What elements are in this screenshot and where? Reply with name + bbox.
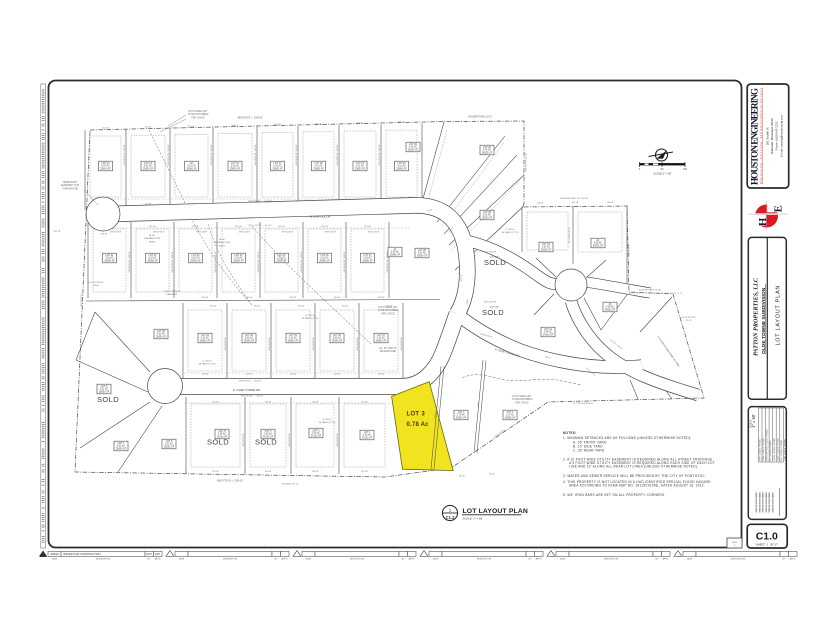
svg-text:Batesville, Mississippi 38606: Batesville, Mississippi 38606 bbox=[770, 118, 774, 154]
svg-text:S00°06'56"W: S00°06'56"W bbox=[629, 244, 631, 256]
svg-text:25650 SF: 25650 SF bbox=[186, 168, 197, 171]
svg-text:S00°06'56"W: S00°06'56"W bbox=[313, 337, 315, 351]
svg-text:S00°06'56"W: S00°06'56"W bbox=[243, 433, 245, 447]
svg-text:SOLD: SOLD bbox=[484, 258, 506, 267]
svg-text:25650 SF: 25650 SF bbox=[505, 417, 516, 420]
svg-text:N89°47'51"W — 1294.06': N89°47'51"W — 1294.06' bbox=[217, 481, 244, 483]
svg-text:LINE AND 10' ALONG ALL REAR LO: LINE AND 10' ALONG ALL REAR LOT LINES (U… bbox=[569, 464, 698, 468]
svg-text:25650 SF: 25650 SF bbox=[541, 249, 552, 252]
svg-text:24530 SF: 24530 SF bbox=[605, 309, 616, 312]
svg-text:APPD: APPD bbox=[663, 558, 669, 561]
svg-text:3. WATER AND SEWER SERVICE W: 3. WATER AND SEWER SERVICE WILL BE PROVI… bbox=[563, 474, 706, 478]
svg-text:25650 SF: 25650 SF bbox=[116, 448, 127, 451]
svg-text:S89°53'04"E — 1294.06': S89°53'04"E — 1294.06' bbox=[237, 118, 263, 120]
svg-text:ISSUED FOR CONSTRUCTION: ISSUED FOR CONSTRUCTION bbox=[63, 552, 101, 556]
svg-text:DAH: DAH bbox=[146, 553, 151, 556]
svg-text:W SUFFOLK DR: W SUFFOLK DR bbox=[309, 215, 330, 219]
svg-text:N01°51'04"E: N01°51'04"E bbox=[484, 302, 497, 304]
svg-text:110.00': 110.00' bbox=[202, 297, 210, 299]
svg-text:110.00': 110.00' bbox=[192, 226, 200, 228]
svg-text:110.00': 110.00' bbox=[537, 203, 545, 205]
svg-text:S89°52'04"E: S89°52'04"E bbox=[325, 232, 337, 234]
svg-text:110.00': 110.00' bbox=[378, 297, 386, 299]
svg-text:S00°06'56"W 150.00': S00°06'56"W 150.00' bbox=[168, 144, 170, 166]
svg-text:N01°51'04"E: N01°51'04"E bbox=[484, 252, 497, 254]
svg-text:LOT 3: LOT 3 bbox=[407, 412, 426, 418]
svg-text:25650 SF: 25650 SF bbox=[376, 340, 387, 343]
svg-text:DESCRIPTION: DESCRIPTION bbox=[223, 559, 238, 561]
svg-text:EX. 36" CMP TO: EX. 36" CMP TO bbox=[379, 348, 396, 350]
svg-text:S89°52'04"E: S89°52'04"E bbox=[110, 232, 122, 234]
svg-text:S00°06'56"W 150.00': S00°06'56"W 150.00' bbox=[296, 144, 298, 166]
svg-text:S00°06'56"W 150.00': S00°06'56"W 150.00' bbox=[258, 251, 260, 273]
svg-text:102.46': 102.46' bbox=[571, 202, 579, 204]
svg-text:S89°52'04"E: S89°52'04"E bbox=[368, 232, 380, 234]
svg-text:S00°06'56"W 150.00': S00°06'56"W 150.00' bbox=[255, 144, 257, 166]
svg-text:64.67': 64.67' bbox=[489, 474, 495, 476]
svg-text:DESCRIPTION 4/30/20 ISSUED: DESCRIPTION 4/30/20 ISSUED bbox=[767, 429, 769, 461]
svg-text:CERTIFICATE OF AUTHORIZATION: CERTIFICATE OF AUTHORIZATION bbox=[755, 492, 758, 513]
svg-text:TO BE DISTURBED: TO BE DISTURBED bbox=[378, 310, 399, 312]
svg-text:S00°06'56"W 150.00': S00°06'56"W 150.00' bbox=[129, 251, 131, 273]
svg-text:DAH: DAH bbox=[155, 553, 160, 556]
svg-text:DATE 4/30/20 ISSUED: DATE 4/30/20 ISSUED bbox=[776, 438, 779, 461]
svg-text:APPD: APPD bbox=[409, 558, 415, 561]
svg-text:25650 SF: 25650 SF bbox=[230, 168, 241, 171]
svg-text:EASEMENT: EASEMENT bbox=[166, 293, 178, 296]
svg-text:SETBACK (TYP.): SETBACK (TYP.) bbox=[199, 363, 216, 366]
svg-text:25650 SF: 25650 SF bbox=[156, 336, 167, 339]
svg-text:DESCRIPTION: DESCRIPTION bbox=[477, 559, 492, 561]
svg-text:C1.2: C1.2 bbox=[446, 515, 456, 520]
svg-text:APPD: APPD bbox=[155, 558, 161, 561]
svg-text:24130 SF: 24130 SF bbox=[311, 435, 322, 438]
svg-text:115.00': 115.00' bbox=[312, 471, 320, 473]
svg-text:S89°53'04"E — 645.00': S89°53'04"E — 645.00' bbox=[248, 201, 272, 203]
svg-text:E: E bbox=[774, 205, 785, 212]
svg-text:25650 SF: 25650 SF bbox=[233, 260, 244, 263]
svg-text:S89°53'04"E — 360.00': S89°53'04"E — 360.00' bbox=[241, 396, 264, 398]
svg-text:25650 SF: 25650 SF bbox=[355, 168, 366, 171]
svg-text:Engineering, Surveying, and En: Engineering, Surveying, and Environmenta… bbox=[759, 87, 763, 184]
svg-text:BLUE: BLUE bbox=[219, 239, 225, 241]
svg-text:24530 SF: 24530 SF bbox=[593, 245, 604, 248]
svg-text:115.00': 115.00' bbox=[212, 471, 220, 473]
svg-text:PER USACE: PER USACE bbox=[191, 116, 205, 119]
svg-text:Phone: (662) 647-1213: Phone: (662) 647-1213 bbox=[775, 121, 779, 150]
svg-text:NOTES:: NOTES: bbox=[563, 431, 577, 435]
svg-text:DATE: DATE bbox=[560, 558, 566, 561]
svg-text:0.78 Ac: 0.78 Ac bbox=[407, 422, 430, 428]
svg-text:115.00': 115.00' bbox=[334, 374, 342, 376]
svg-text:110.00': 110.00' bbox=[298, 306, 306, 308]
svg-text:"LOT 28": "LOT 28" bbox=[489, 256, 499, 259]
svg-text:26535 SF: 26535 SF bbox=[482, 152, 493, 155]
svg-text:TO BE DISTURBED: TO BE DISTURBED bbox=[188, 114, 209, 116]
svg-text:120: 120 bbox=[683, 168, 688, 171]
svg-text:SOLD: SOLD bbox=[255, 438, 277, 447]
svg-text:SETBACK (TYP.): SETBACK (TYP.) bbox=[302, 317, 319, 320]
svg-text:SOLD: SOLD bbox=[207, 438, 229, 447]
svg-text:S00°06'56"W: S00°06'56"W bbox=[225, 337, 227, 351]
svg-text:S00°06'56"W 150.00': S00°06'56"W 150.00' bbox=[337, 144, 339, 166]
svg-text:CHK 4/30/20 ISSUED: CHK 4/30/20 ISSUED bbox=[785, 439, 787, 461]
svg-text:SUDDERTOWN LN/CT: SUDDERTOWN LN/CT bbox=[468, 117, 493, 119]
svg-text:E. OLDE TOWNE DR.: E. OLDE TOWNE DR. bbox=[233, 388, 261, 392]
svg-text:25650 SF: 25650 SF bbox=[417, 255, 428, 258]
svg-text:LOT LAYOUT PLAN: LOT LAYOUT PLAN bbox=[776, 285, 782, 346]
svg-text:SUDDERTOWN LN 105.08': SUDDERTOWN LN 105.08' bbox=[560, 198, 589, 200]
svg-text:110.00': 110.00' bbox=[290, 297, 298, 299]
svg-text:ROGERS TR 31: ROGERS TR 31 bbox=[282, 484, 299, 486]
svg-text:BE REPLACED: BE REPLACED bbox=[380, 350, 396, 353]
svg-text:110.00': 110.00' bbox=[210, 306, 218, 308]
svg-text:25650 SF: 25650 SF bbox=[288, 340, 299, 343]
svg-text:C1.0: C1.0 bbox=[756, 531, 778, 543]
svg-text:10' BLDG: 10' BLDG bbox=[505, 229, 515, 231]
svg-text:SCALE: 1" = 60': SCALE: 1" = 60' bbox=[463, 516, 484, 520]
svg-text:CERTIFICATE OF AUTHORIZATION: CERTIFICATE OF AUTHORIZATION bbox=[758, 492, 761, 513]
svg-text:EASEMENT FOR: EASEMENT FOR bbox=[61, 184, 79, 187]
svg-text:25650 SF: 25650 SF bbox=[200, 340, 211, 343]
svg-text:DATE: DATE bbox=[179, 558, 185, 561]
svg-text:DATE: DATE bbox=[52, 558, 58, 561]
svg-text:24530 SF: 24530 SF bbox=[543, 334, 554, 337]
svg-text:110.00': 110.00' bbox=[342, 306, 350, 308]
svg-text:25650 SF: 25650 SF bbox=[332, 340, 343, 343]
svg-text:CERTIFICATE OF AUTHORIZATION: CERTIFICATE OF AUTHORIZATION bbox=[768, 492, 771, 513]
svg-text:DRAINAGE PIPE: DRAINAGE PIPE bbox=[214, 241, 231, 244]
svg-text:1. MINIMUM SETBACKS ARE AS F: 1. MINIMUM SETBACKS ARE AS FOLLOWS (UNLE… bbox=[563, 436, 691, 440]
svg-text:DITCH AREA NOT: DITCH AREA NOT bbox=[188, 110, 208, 113]
svg-text:110.00': 110.00' bbox=[278, 226, 286, 228]
svg-text:DRAINAGE PIPE: DRAINAGE PIPE bbox=[144, 237, 161, 240]
svg-text:DESCRIPTION: DESCRIPTION bbox=[604, 559, 619, 561]
svg-text:DATE: DATE bbox=[306, 558, 312, 561]
svg-text:25650 SF: 25650 SF bbox=[313, 168, 324, 171]
svg-text:110.00': 110.00' bbox=[254, 306, 262, 308]
svg-text:TURNAROUND: TURNAROUND bbox=[62, 187, 79, 190]
svg-text:25650 SF: 25650 SF bbox=[319, 260, 330, 263]
svg-text:DITCH AREA NOT: DITCH AREA NOT bbox=[512, 395, 532, 398]
svg-text:CERTIFICATE OF AUTHORIZATION: CERTIFICATE OF AUTHORIZATION bbox=[762, 492, 765, 513]
svg-text:110.00': 110.00' bbox=[235, 226, 243, 228]
svg-text:C. 35' REAR YARD: C. 35' REAR YARD bbox=[573, 449, 605, 453]
svg-text:S00°06'56"W: S00°06'56"W bbox=[269, 337, 271, 351]
svg-text:AREA: AREA bbox=[149, 240, 155, 243]
svg-text:S00°06'56"W: S00°06'56"W bbox=[401, 337, 403, 351]
svg-text:25650 SF: 25650 SF bbox=[390, 254, 401, 257]
svg-text:DESCRIPTION: DESCRIPTION bbox=[731, 559, 746, 561]
svg-text:N89°53'04"W — 645.00': N89°53'04"W — 645.00' bbox=[248, 225, 272, 227]
svg-text:DESCRIPTION: DESCRIPTION bbox=[350, 559, 365, 561]
svg-text:DWG: DWG bbox=[732, 542, 738, 544]
svg-text:AREA ACCORDING TO FEMA MAP NO.: AREA ACCORDING TO FEMA MAP NO. 28115C015… bbox=[569, 484, 705, 488]
svg-text:25614 SF: 25614 SF bbox=[100, 168, 111, 171]
svg-text:115.00': 115.00' bbox=[378, 374, 386, 376]
svg-text:25650 SF: 25650 SF bbox=[147, 260, 158, 263]
svg-text:SUSP DRAINAGE: SUSP DRAINAGE bbox=[164, 290, 181, 293]
svg-text:APPD: APPD bbox=[536, 558, 542, 561]
svg-text:LOT LAYOUT PLAN: LOT LAYOUT PLAN bbox=[463, 508, 528, 515]
svg-text:25650 SF: 25650 SF bbox=[396, 168, 407, 171]
svg-text:SETBACK (TYP.): SETBACK (TYP.) bbox=[319, 421, 336, 424]
svg-text:SUDDERTOWN: SUDDERTOWN bbox=[680, 317, 696, 319]
svg-text:HOUSTON ENGINEERING: HOUSTON ENGINEERING bbox=[750, 88, 760, 185]
svg-text:APPD 4/30/20 ISSUED: APPD 4/30/20 ISSUED bbox=[773, 437, 776, 460]
svg-text:NO. 4/30/20 ISSUED: NO. 4/30/20 ISSUED bbox=[781, 439, 783, 460]
svg-text:115.00': 115.00' bbox=[246, 374, 254, 376]
svg-text:25650 SF: 25650 SF bbox=[456, 417, 467, 420]
svg-text:TEMPORARY: TEMPORARY bbox=[63, 181, 78, 184]
svg-text:85.00': 85.00' bbox=[459, 476, 465, 478]
svg-text:SOLD: SOLD bbox=[97, 395, 119, 404]
svg-text:25650 SF: 25650 SF bbox=[99, 391, 110, 394]
svg-text:APPD: APPD bbox=[790, 558, 796, 561]
svg-text:S00°06'56"W: S00°06'56"W bbox=[337, 433, 339, 447]
svg-text:SCALE:: SCALE: bbox=[749, 419, 752, 428]
svg-text:10' BLDG: 10' BLDG bbox=[305, 315, 315, 317]
svg-text:"LOT 29": "LOT 29" bbox=[489, 306, 499, 309]
svg-text:110.00': 110.00' bbox=[321, 226, 329, 228]
svg-text:S89°52'04"E: S89°52'04"E bbox=[153, 232, 165, 234]
svg-text:110.00': 110.00' bbox=[364, 226, 372, 228]
svg-text:102.18': 102.18' bbox=[53, 231, 61, 233]
svg-text:H: H bbox=[758, 218, 769, 226]
svg-text:S00°06'56"W 150.00': S00°06'56"W 150.00' bbox=[301, 251, 303, 273]
svg-text:S89°53'04"E — 360.00': S89°53'04"E — 360.00' bbox=[239, 380, 262, 382]
svg-text:25650 SF: 25650 SF bbox=[362, 260, 373, 263]
svg-text:DATE: DATE bbox=[687, 558, 693, 561]
svg-text:104.08': 104.08' bbox=[100, 234, 108, 236]
svg-text:4/30/20: 4/30/20 bbox=[50, 552, 59, 556]
svg-text:110.00': 110.00' bbox=[334, 297, 342, 299]
svg-text:SOLD: SOLD bbox=[482, 308, 504, 317]
svg-text:5. 5/8" IRON BARS ARE SET ON: 5. 5/8" IRON BARS ARE SET ON ALL PROPERT… bbox=[563, 493, 665, 497]
svg-text:S89°52'04"E: S89°52'04"E bbox=[282, 232, 294, 234]
svg-text:115.00': 115.00' bbox=[361, 471, 369, 473]
svg-text:TO BE DISTURBED: TO BE DISTURBED bbox=[512, 399, 533, 401]
svg-text:110.00': 110.00' bbox=[607, 202, 615, 204]
svg-text:PER USACE: PER USACE bbox=[381, 312, 395, 315]
svg-text:BY 4/30/20 ISSUED: BY 4/30/20 ISSUED bbox=[770, 440, 772, 460]
svg-text:SCALE 1" = 60': SCALE 1" = 60' bbox=[654, 172, 672, 176]
svg-text:10' BLDG: 10' BLDG bbox=[322, 419, 332, 421]
svg-text:10' BLDG: 10' BLDG bbox=[202, 361, 212, 363]
svg-text:201 Souffle St.: 201 Souffle St. bbox=[766, 127, 770, 146]
svg-text:S00°06'56"W 150.00': S00°06'56"W 150.00' bbox=[526, 152, 528, 171]
svg-text:SUDDERTOWN 175.08': SUDDERTOWN 175.08' bbox=[639, 290, 662, 292]
svg-text:25650 SF: 25650 SF bbox=[190, 260, 201, 263]
svg-text:25650 SF: 25650 SF bbox=[272, 168, 283, 171]
svg-text:24130 SF: 24130 SF bbox=[362, 437, 373, 440]
svg-text:E-mail: houeng@houstoneng.com: E-mail: houeng@houstoneng.com bbox=[779, 114, 783, 157]
svg-text:115.00': 115.00' bbox=[265, 471, 273, 473]
svg-text:S00°06'56"W 150.00': S00°06'56"W 150.00' bbox=[172, 251, 174, 273]
svg-text:DATE 4/30/20 ISSUED: DATE 4/30/20 ISSUED bbox=[762, 438, 765, 461]
svg-text:S89°52'04"E: S89°52'04"E bbox=[239, 232, 251, 234]
svg-text:SETBACK (TYP.): SETBACK (TYP.) bbox=[502, 231, 519, 234]
svg-text:115.00': 115.00' bbox=[290, 374, 298, 376]
svg-text:DO NOT BUILD: DO NOT BUILD bbox=[89, 282, 104, 284]
svg-text:CERTIFICATE OF AUTHORIZATION: CERTIFICATE OF AUTHORIZATION bbox=[765, 492, 768, 513]
svg-text:DITCH AREA NOT: DITCH AREA NOT bbox=[378, 306, 398, 309]
svg-text:25650 SF: 25650 SF bbox=[276, 260, 287, 263]
svg-text:PER USACE: PER USACE bbox=[515, 401, 529, 404]
svg-text:S00°06'56"W 150.00': S00°06'56"W 150.00' bbox=[344, 251, 346, 273]
svg-text:1: 1 bbox=[449, 507, 452, 512]
svg-text:25650 SF: 25650 SF bbox=[164, 446, 175, 449]
svg-text:S00°06'56"W 150.00': S00°06'56"W 150.00' bbox=[124, 144, 126, 166]
svg-text:S01°06'W 150.00': S01°06'W 150.00' bbox=[569, 226, 571, 243]
svg-text:110.00': 110.00' bbox=[149, 226, 157, 228]
svg-text:31.2 TR HUDSPETH: 31.2 TR HUDSPETH bbox=[573, 403, 594, 405]
svg-text:25650 SF: 25650 SF bbox=[408, 149, 419, 152]
svg-text:25650 SF: 25650 SF bbox=[143, 168, 154, 171]
svg-text:BLUE: BLUE bbox=[149, 235, 155, 237]
svg-text:25650 SF: 25650 SF bbox=[104, 260, 115, 263]
svg-text:175.08': 175.08' bbox=[685, 320, 692, 322]
svg-text:AREA: AREA bbox=[219, 244, 225, 247]
svg-text:DATE: DATE bbox=[433, 558, 439, 561]
svg-text:S00°06'56"W 150.00': S00°06'56"W 150.00' bbox=[211, 144, 213, 166]
svg-text:DESCRIPTION: DESCRIPTION bbox=[96, 559, 111, 561]
svg-text:S00°06'56"W: S00°06'56"W bbox=[357, 337, 359, 351]
svg-text:25650 SF: 25650 SF bbox=[244, 340, 255, 343]
svg-text:APPD: APPD bbox=[282, 558, 288, 561]
svg-text:S00°06'56"W 150.00': S00°06'56"W 150.00' bbox=[215, 251, 217, 273]
svg-text:REV 4/30/20 ISSUED: REV 4/30/20 ISSUED bbox=[760, 439, 762, 461]
svg-text:S00°06'56"W 150.00': S00°06'56"W 150.00' bbox=[379, 144, 381, 166]
svg-text:115.00': 115.00' bbox=[202, 374, 210, 376]
svg-text:CERTIFICATE OF AUTHORIZATION: CERTIFICATE OF AUTHORIZATION bbox=[772, 492, 775, 513]
svg-text:PATTON PROPERTIES, LLC: PATTON PROPERTIES, LLC bbox=[752, 277, 759, 356]
svg-text:25650 SF: 25650 SF bbox=[482, 217, 493, 220]
svg-text:SHEET 1 OF 17: SHEET 1 OF 17 bbox=[756, 543, 778, 547]
svg-text:S89°52'04"E: S89°52'04"E bbox=[196, 232, 208, 234]
svg-text:S00°06'56"W: S00°06'56"W bbox=[289, 433, 291, 447]
